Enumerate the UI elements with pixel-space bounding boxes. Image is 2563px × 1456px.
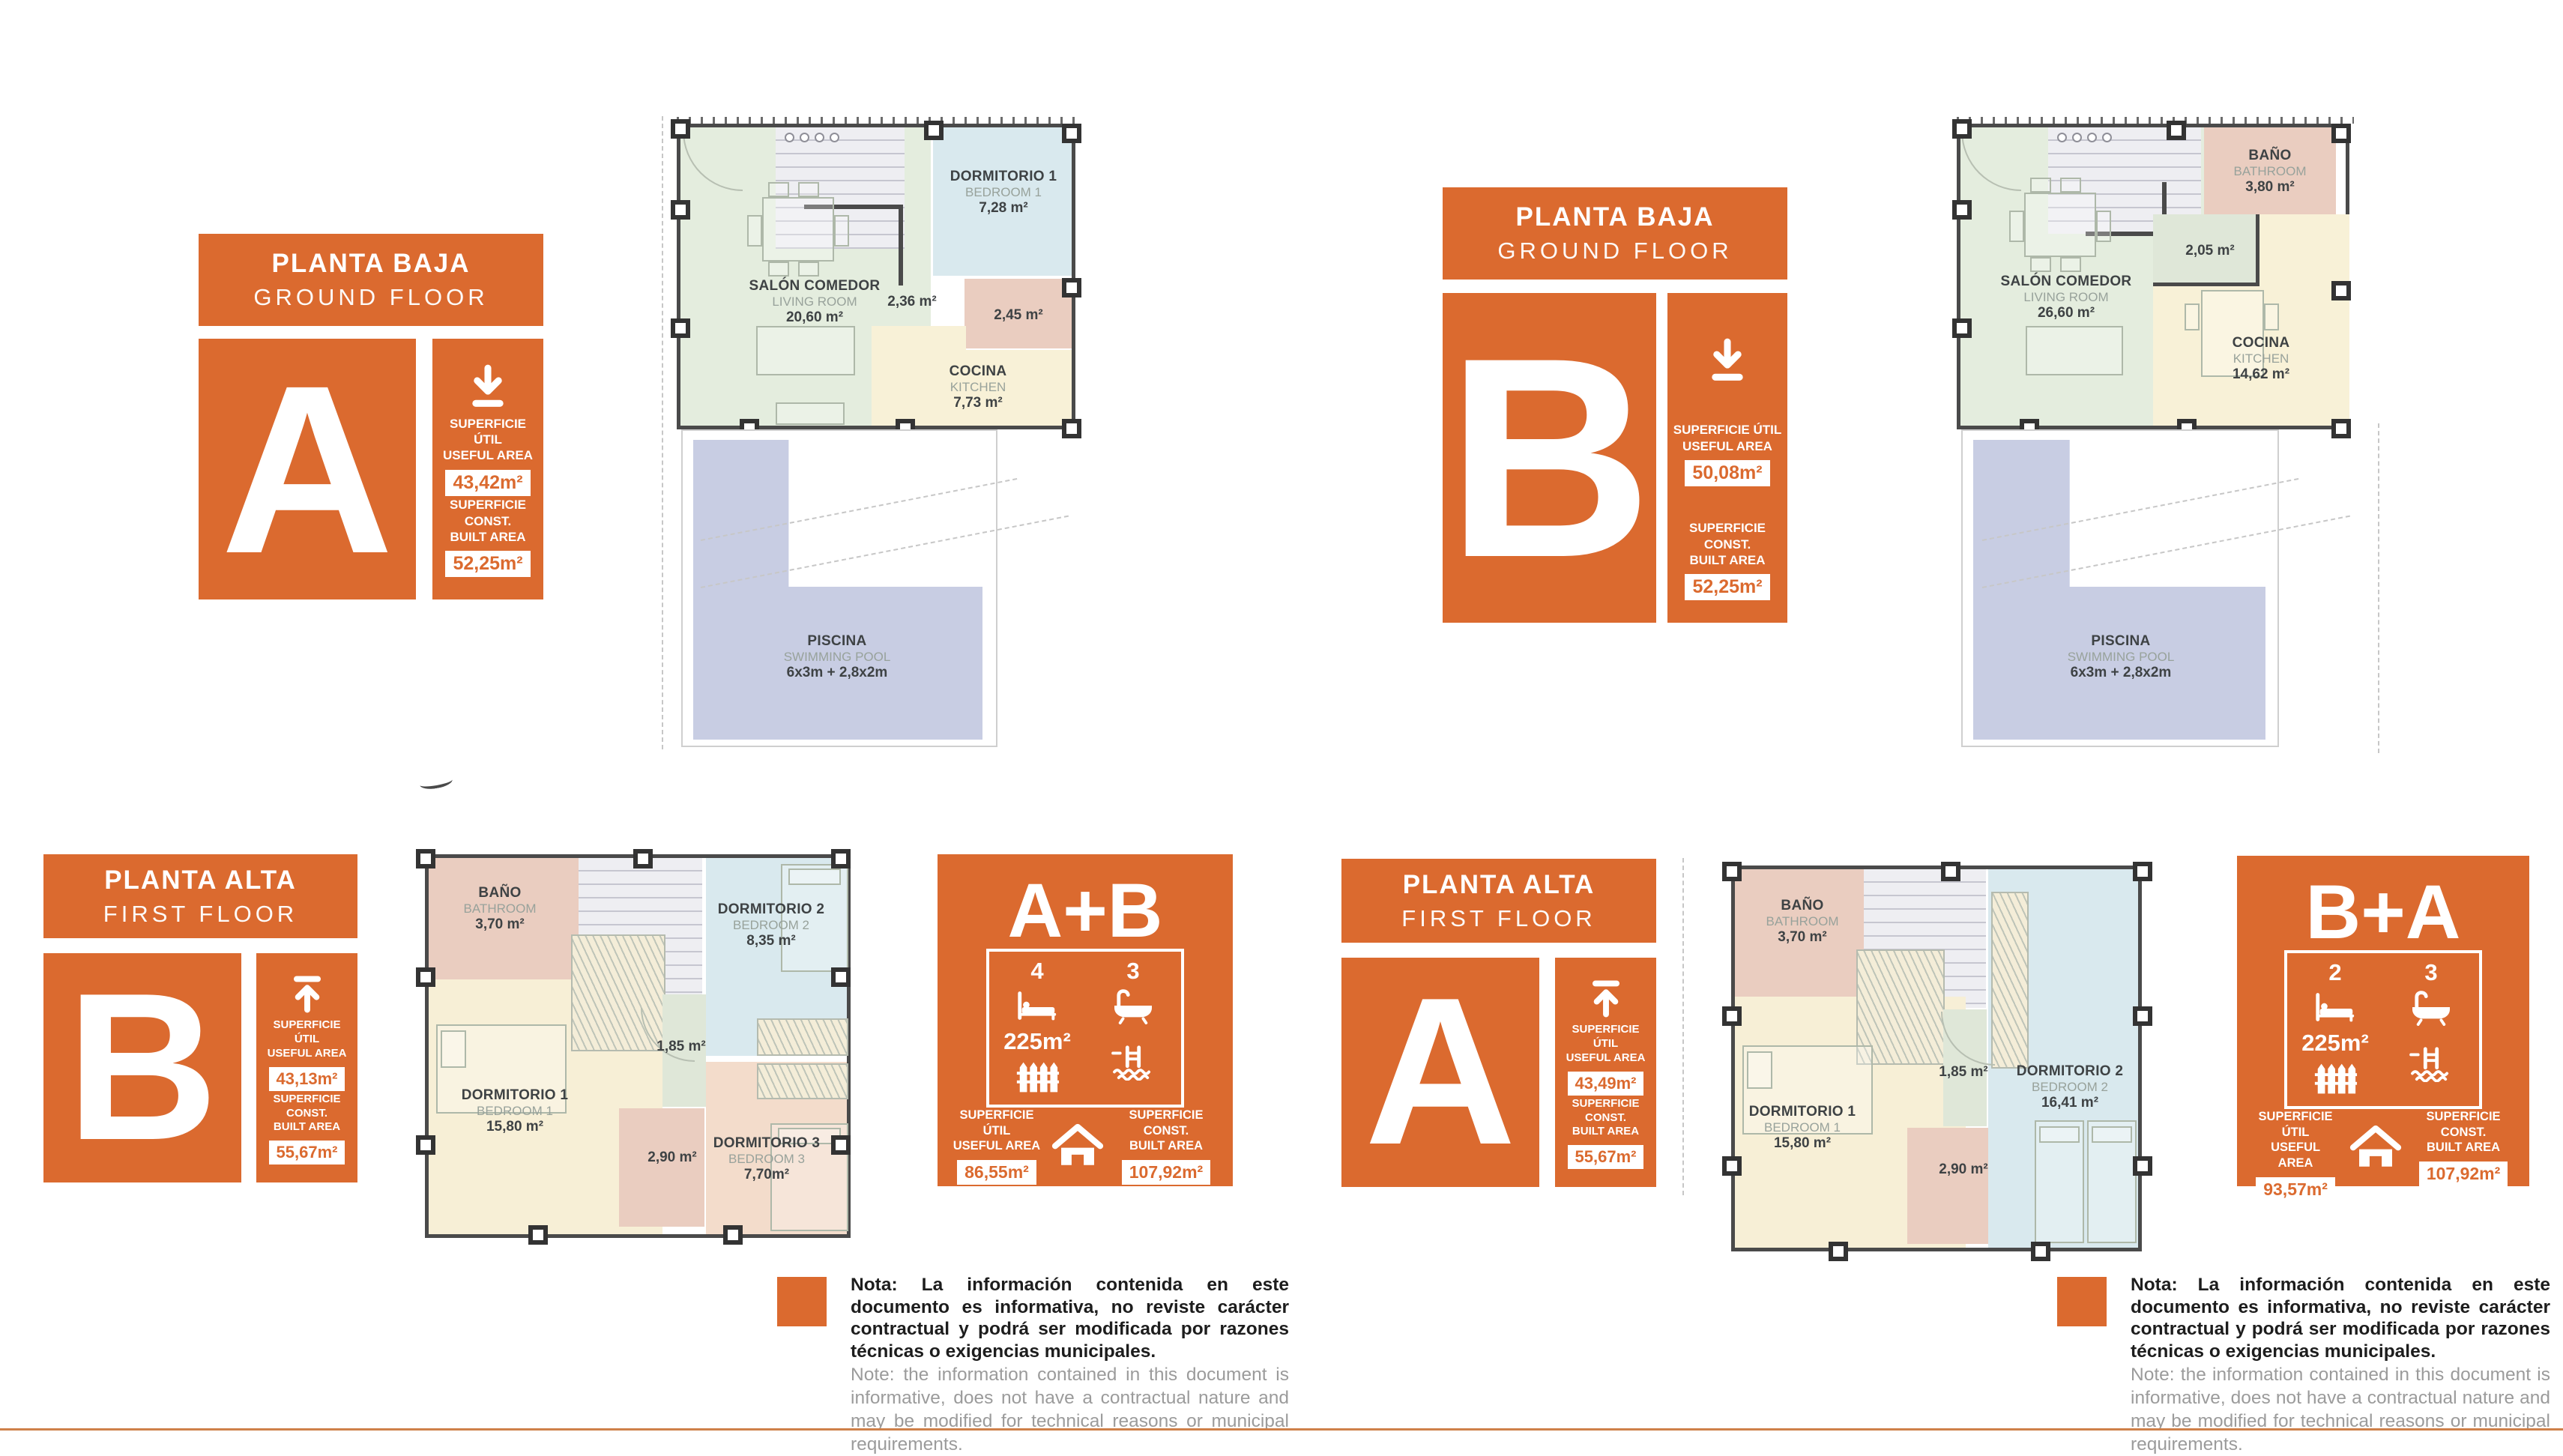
room-name-es: DORMITORIO 3 xyxy=(713,1135,821,1152)
panel-ground-floor-b: PLANTA BAJA GROUND FLOOR B SUPERFICIE ÚT… xyxy=(1443,187,1787,623)
wall-pillar xyxy=(2133,862,2152,881)
useful-label-en: USEFUL AREA xyxy=(1566,1051,1646,1066)
floor-title-en: GROUND FLOOR xyxy=(1497,238,1732,265)
wardrobe xyxy=(757,1063,848,1099)
built-label-en: BUILT AREA xyxy=(1129,1138,1203,1154)
panel-first-floor-b: PLANTA ALTA FIRST FLOOR B SUPERFICIE ÚTI… xyxy=(43,854,357,1182)
chair xyxy=(2060,178,2081,193)
room-area: 2,05 m² xyxy=(2185,243,2234,259)
room-label-bathroom: BAÑO BATHROOM 3,70 m² xyxy=(464,885,537,933)
room-name-en: BATHROOM xyxy=(464,901,537,916)
stair-step-numbers xyxy=(785,133,839,142)
combined-title: B+A xyxy=(2306,874,2461,950)
useful-value: 43,42m² xyxy=(445,470,530,496)
room-name-es: BAÑO xyxy=(1766,898,1839,914)
pool-dimensions: 6x3m + 2,8x2m xyxy=(784,665,891,681)
wall-pillar xyxy=(1941,862,1960,881)
note-en: Note: the information contained in this … xyxy=(2131,1363,2550,1456)
built-value: 107,92m² xyxy=(1122,1160,1210,1185)
wardrobe xyxy=(757,1018,848,1056)
built-area-group: SUPERFICIE CONST. BUILT AREA 52,25m² xyxy=(437,497,539,577)
built-label-en: BUILT AREA xyxy=(274,1120,340,1135)
chair xyxy=(2185,303,2200,330)
wall-pillar xyxy=(528,1225,548,1245)
built-label-es: SUPERFICIE CONST. xyxy=(437,497,539,529)
room-area: 14,62 m² xyxy=(2233,366,2290,383)
room-bathroom2 xyxy=(619,1108,704,1227)
built-label-en: BUILT AREA xyxy=(2427,1140,2500,1156)
useful-label-es: SUPERFICIE ÚTIL xyxy=(1558,1023,1653,1051)
built-label-en: BUILT AREA xyxy=(1689,552,1765,568)
wall-pillar xyxy=(1722,1156,1742,1176)
floor-plan-b-ground: SALÓN COMEDOR LIVING ROOM 26,60 m² BAÑO … xyxy=(1952,101,2387,761)
bathtub-icon xyxy=(2408,988,2454,1030)
pool-dimensions: 6x3m + 2,8x2m xyxy=(2068,665,2175,681)
stair-step-numbers xyxy=(2057,133,2112,142)
bathtub-icon xyxy=(1110,987,1156,1028)
built-area-group: SUPERFICIE CONST. BUILT AREA 55,67m² xyxy=(259,1093,354,1165)
fence-icon xyxy=(2312,1059,2358,1100)
room-label-hall: 1,85 m² xyxy=(656,1039,705,1055)
plot-boundary-dashed xyxy=(1682,858,1684,1195)
bathroom-count: 3 xyxy=(1126,958,1139,985)
floor-title-block: PLANTA ALTA FIRST FLOOR xyxy=(43,854,357,938)
room-name-es: DORMITORIO 1 xyxy=(462,1087,569,1104)
plot-feature: 225m² xyxy=(1003,1028,1071,1099)
room-area: 7,70m² xyxy=(713,1167,821,1183)
pool-feature xyxy=(2408,1045,2454,1086)
room-name-en: BATHROOM xyxy=(2234,164,2307,179)
combined-area-stats: SUPERFICIE ÚTIL USEFUL AREA 86,55m² SUPE… xyxy=(953,1108,1218,1185)
wall-pillar xyxy=(2031,1242,2050,1261)
room-name-en: KITCHEN xyxy=(2233,351,2290,366)
dining-table xyxy=(2024,193,2096,257)
pillow xyxy=(441,1030,466,1068)
room-label-bathroom2: 2,90 m² xyxy=(647,1150,696,1166)
room-name-es: BAÑO xyxy=(2234,148,2307,164)
room-label-bedroom1: DORMITORIO 1 BEDROOM 1 15,80 m² xyxy=(1749,1104,1856,1152)
unit-letter: A xyxy=(199,339,416,599)
fence-icon xyxy=(1014,1057,1060,1099)
room-area: 2,45 m² xyxy=(994,307,1042,324)
unit-letter: A xyxy=(1341,958,1539,1187)
useful-label-en: USEFUL AREA xyxy=(268,1047,347,1061)
built-label-en: BUILT AREA xyxy=(1572,1125,1639,1139)
room-label-hall: 1,85 m² xyxy=(1939,1064,1987,1081)
room-area: 2,90 m² xyxy=(647,1150,696,1166)
wall-pillar xyxy=(671,318,690,338)
bathroom-count: 3 xyxy=(2424,959,2437,986)
useful-value: 43,49m² xyxy=(1568,1072,1644,1096)
room-label-bathroom: BAÑO BATHROOM 3,70 m² xyxy=(1766,898,1839,946)
wall-pillar xyxy=(2133,1156,2152,1176)
built-area-group: SUPERFICIE CONST. BUILT AREA 107,92m² xyxy=(1114,1108,1218,1185)
room-name-es: SALÓN COMEDOR xyxy=(2001,274,2132,290)
note-bullet-square xyxy=(777,1277,827,1326)
room-label-living: SALÓN COMEDOR LIVING ROOM 20,60 m² xyxy=(749,278,881,326)
built-area-group: SUPERFICIE CONST. BUILT AREA 107,92m² xyxy=(2412,1109,2514,1186)
room-name-en: BEDROOM 1 xyxy=(462,1104,569,1119)
built-value: 52,25m² xyxy=(1685,574,1769,600)
room-name-en: BATHROOM xyxy=(1766,914,1839,929)
chair xyxy=(798,262,819,277)
room-label-bathroom: BAÑO BATHROOM 3,80 m² xyxy=(2234,148,2307,196)
bottom-accent-bar xyxy=(0,1428,2563,1431)
room-area: 16,41 m² xyxy=(2017,1095,2124,1111)
room-name-en: BEDROOM 3 xyxy=(713,1152,821,1167)
pool-label: PISCINA SWIMMING POOL 6x3m + 2,8x2m xyxy=(784,633,891,681)
room-name-es: DORMITORIO 2 xyxy=(718,901,825,918)
wall-pillar xyxy=(1952,119,1972,139)
panel-ground-floor-a: PLANTA BAJA GROUND FLOOR A SUPERFICIE ÚT… xyxy=(199,234,543,599)
combined-title: A+B xyxy=(1008,872,1163,949)
useful-value: 43,13m² xyxy=(269,1067,345,1091)
useful-area-group: SUPERFICIE ÚTIL USEFUL AREA 86,55m² xyxy=(953,1108,1041,1185)
unit-body: A SUPERFICIE ÚTIL USEFUL AREA 43,49m² SU… xyxy=(1341,958,1656,1187)
useful-value: 50,08m² xyxy=(1685,460,1769,486)
floor-title-block: PLANTA ALTA FIRST FLOOR xyxy=(1341,859,1656,943)
room-name-es: COCINA xyxy=(950,363,1007,380)
bed-icon xyxy=(2312,988,2358,1030)
room-area: 2,90 m² xyxy=(1939,1162,1987,1178)
room-area: 3,80 m² xyxy=(2234,179,2307,196)
room-area: 3,70 m² xyxy=(464,916,537,933)
download-icon xyxy=(465,364,511,414)
useful-area-group: SUPERFICIE ÚTIL USEFUL AREA 43,42m² xyxy=(437,416,539,496)
floor-title-es: PLANTA BAJA xyxy=(1515,202,1714,232)
unit-letter: B xyxy=(1443,293,1656,623)
plot-boundary-dashed xyxy=(662,116,663,749)
room-label-bedroom1: DORMITORIO 1 BEDROOM 1 7,28 m² xyxy=(950,169,1057,217)
wall-pillar xyxy=(1722,1006,1742,1026)
wall-pillar xyxy=(1062,124,1081,143)
facade-hatch xyxy=(677,117,1079,124)
room-label-bedroom3: DORMITORIO 3 BEDROOM 3 7,70m² xyxy=(713,1135,821,1183)
sofa xyxy=(2026,326,2123,375)
floor-title-en: FIRST FLOOR xyxy=(103,901,298,928)
wall-pillar xyxy=(633,849,653,869)
room-name-es: DORMITORIO 1 xyxy=(950,169,1057,185)
upload-icon xyxy=(287,973,327,1017)
room-area: 1,85 m² xyxy=(1939,1064,1987,1081)
built-value: 107,92m² xyxy=(2419,1162,2508,1186)
bedroom-count: 2 xyxy=(2328,959,2341,986)
pillow xyxy=(2092,1126,2132,1143)
unit-body: B SUPERFICIE ÚTIL USEFUL AREA 50,08m² SU… xyxy=(1443,293,1787,623)
room-label-kitchen: COCINA KITCHEN 14,62 m² xyxy=(2233,335,2290,383)
built-value: 52,25m² xyxy=(445,551,530,577)
area-stats: SUPERFICIE ÚTIL USEFUL AREA 43,49m² SUPE… xyxy=(1555,958,1656,1187)
chair xyxy=(2030,178,2051,193)
useful-label-es: SUPERFICIE ÚTIL xyxy=(1673,422,1782,438)
floor-plan-b-first: BAÑO BATHROOM 3,70 m² DORMITORIO 2 BEDRO… xyxy=(416,821,866,1251)
floor-plan-a-first: BAÑO BATHROOM 3,70 m² DORMITORIO 1 BEDRO… xyxy=(1716,821,2196,1259)
room-area: 15,80 m² xyxy=(1749,1135,1856,1152)
unit-body: A SUPERFICIE ÚTIL USEFUL AREA 43,42m² SU… xyxy=(199,339,543,599)
pillow xyxy=(1747,1051,1772,1089)
note-en: Note: the information contained in this … xyxy=(851,1363,1289,1456)
useful-label-en: USEFUL AREA xyxy=(443,447,533,463)
built-label-es: SUPERFICIE CONST. xyxy=(1114,1108,1218,1138)
wall-pillar xyxy=(1952,318,1972,338)
panel-combined-ba: B+A 2 3 225m² SUPERFICIE ÚTIL USEFUL ARE… xyxy=(2237,856,2529,1186)
tv-cabinet xyxy=(776,402,845,425)
room-name-en: BEDROOM 1 xyxy=(1749,1120,1856,1135)
wall-pillar xyxy=(1722,862,1742,881)
useful-label-en: USEFUL AREA xyxy=(1682,438,1772,454)
chair xyxy=(2030,257,2051,272)
chair xyxy=(2264,303,2279,330)
bed-icon xyxy=(1014,987,1060,1028)
wall-pillar xyxy=(416,967,435,987)
built-label-en: BUILT AREA xyxy=(450,529,525,545)
wall-pillar xyxy=(831,967,851,987)
area-stats: SUPERFICIE ÚTIL USEFUL AREA 43,13m² SUPE… xyxy=(256,953,357,1182)
chair xyxy=(834,215,849,247)
useful-area-group: SUPERFICIE ÚTIL USEFUL AREA 43,13m² xyxy=(259,1018,354,1090)
room-name-es: SALÓN COMEDOR xyxy=(749,278,881,294)
floor-title-es: PLANTA ALTA xyxy=(104,866,297,895)
useful-label-es: SUPERFICIE ÚTIL xyxy=(953,1108,1041,1138)
room-area: 8,35 m² xyxy=(718,933,825,949)
useful-label-en: USEFUL AREA xyxy=(953,1138,1040,1154)
features-box: 4 3 225m² xyxy=(986,949,1184,1108)
wall-pillar xyxy=(723,1225,743,1245)
room-label-bedroom2: DORMITORIO 2 BEDROOM 2 16,41 m² xyxy=(2017,1063,2124,1111)
facade-hatch xyxy=(1957,117,2354,124)
panel-combined-ab: A+B 4 3 225m² SUPERFICIE ÚTIL USEFUL ARE… xyxy=(938,854,1233,1186)
wall-pillar xyxy=(2331,124,2351,143)
panel-first-floor-a: PLANTA ALTA FIRST FLOOR A SUPERFICIE ÚTI… xyxy=(1341,859,1656,1187)
stray-mark xyxy=(419,773,453,791)
room-name-es: DORMITORIO 2 xyxy=(2017,1063,2124,1080)
useful-area-group: SUPERFICIE ÚTIL USEFUL AREA 43,49m² xyxy=(1558,1023,1653,1095)
pillow xyxy=(788,869,841,885)
floor-title-en: FIRST FLOOR xyxy=(1401,905,1596,932)
room-name-en: LIVING ROOM xyxy=(2001,290,2132,305)
wall-pillar xyxy=(671,119,690,139)
unit-letter: B xyxy=(43,953,241,1182)
wardrobe xyxy=(1991,892,2029,1069)
room-label-kitchen: COCINA KITCHEN 7,73 m² xyxy=(950,363,1007,411)
useful-value: 93,57m² xyxy=(2256,1177,2335,1202)
pool-name-es: PISCINA xyxy=(2068,633,2175,650)
room-label-bedroom2: DORMITORIO 2 BEDROOM 2 8,35 m² xyxy=(718,901,825,949)
room-name-es: DORMITORIO 1 xyxy=(1749,1104,1856,1120)
pool-feature xyxy=(1110,1043,1156,1084)
bathrooms-feature: 3 xyxy=(1110,958,1156,1028)
pool-icon xyxy=(1110,1043,1156,1084)
floor-title-block: PLANTA BAJA GROUND FLOOR xyxy=(199,234,543,326)
wall-pillar xyxy=(1062,278,1081,297)
built-label-es: SUPERFICIE CONST. xyxy=(259,1093,354,1121)
wall-pillar xyxy=(2133,1006,2152,1026)
room-area: 2,36 m² xyxy=(887,294,936,310)
plot-feature: 225m² xyxy=(2301,1030,2369,1100)
built-label-es: SUPERFICIE CONST. xyxy=(1558,1097,1653,1126)
features-box: 2 3 225m² xyxy=(2284,950,2482,1109)
room-area: 15,80 m² xyxy=(462,1119,569,1135)
floor-title-es: PLANTA BAJA xyxy=(271,249,470,279)
wall-pillar xyxy=(1952,200,1972,220)
useful-label-es: SUPERFICIE ÚTIL xyxy=(437,416,539,448)
room-name-en: KITCHEN xyxy=(950,380,1007,395)
room-name-es: COCINA xyxy=(2233,335,2290,351)
wall-pillar xyxy=(2331,419,2351,438)
note-es: Nota: La información contenida en este d… xyxy=(2131,1274,2550,1363)
chair xyxy=(747,215,762,247)
built-area-group: SUPERFICIE CONST. BUILT AREA 55,67m² xyxy=(1558,1097,1653,1169)
wall-pillar xyxy=(416,849,435,869)
plot-boundary-dashed xyxy=(2378,423,2379,753)
useful-label-es: SUPERFICIE ÚTIL xyxy=(259,1018,354,1047)
pillow xyxy=(2039,1126,2080,1143)
useful-area-group: SUPERFICIE ÚTIL USEFUL AREA 50,08m² xyxy=(1673,422,1782,486)
house-icon xyxy=(1050,1108,1105,1173)
built-area-group: SUPERFICIE CONST. BUILT AREA 52,25m² xyxy=(1672,520,1783,600)
pool-name-en: SWIMMING POOL xyxy=(784,650,891,665)
room-label-living: SALÓN COMEDOR LIVING ROOM 26,60 m² xyxy=(2001,274,2132,321)
built-value: 55,67m² xyxy=(1568,1145,1644,1169)
useful-label-en: USEFUL AREA xyxy=(2252,1140,2339,1170)
wall-pillar xyxy=(831,1135,851,1155)
plot-area: 225m² xyxy=(1003,1028,1071,1055)
pool-name-es: PISCINA xyxy=(784,633,891,650)
room-label-bedroom1: DORMITORIO 1 BEDROOM 1 15,80 m² xyxy=(462,1087,569,1135)
chair xyxy=(2060,257,2081,272)
room-name-en: BEDROOM 2 xyxy=(718,918,825,933)
pool-name-en: SWIMMING POOL xyxy=(2068,650,2175,665)
room-area: 20,60 m² xyxy=(749,309,881,326)
built-label-es: SUPERFICIE CONST. xyxy=(2412,1109,2514,1140)
wall-pillar xyxy=(1829,1242,1848,1261)
room-label-hall: 2,05 m² xyxy=(2185,243,2234,259)
room-label-bath: 2,45 m² xyxy=(994,307,1042,324)
floor-title-es: PLANTA ALTA xyxy=(1403,870,1596,900)
floor-plan-a-ground: SALÓN COMEDOR LIVING ROOM 20,60 m² DORMI… xyxy=(671,101,1087,761)
combined-area-stats: SUPERFICIE ÚTIL USEFUL AREA 93,57m² SUPE… xyxy=(2252,1109,2514,1202)
area-stats: SUPERFICIE ÚTIL USEFUL AREA 43,42m² SUPE… xyxy=(432,339,543,599)
chair xyxy=(768,182,789,197)
bathrooms-feature: 3 xyxy=(2408,959,2454,1030)
room-area: 3,70 m² xyxy=(1766,929,1839,946)
house-icon xyxy=(2348,1109,2403,1174)
useful-area-group: SUPERFICIE ÚTIL USEFUL AREA 93,57m² xyxy=(2252,1109,2339,1202)
room-name-en: BEDROOM 1 xyxy=(950,185,1057,200)
room-bathroom2 xyxy=(1907,1128,1990,1244)
room-area: 7,73 m² xyxy=(950,395,1007,411)
bedrooms-feature: 4 xyxy=(1014,958,1060,1028)
room-name-en: BEDROOM 2 xyxy=(2017,1080,2124,1095)
floor-title-block: PLANTA BAJA GROUND FLOOR xyxy=(1443,187,1787,280)
wall-pillar xyxy=(416,1135,435,1155)
room-label-hall: 2,36 m² xyxy=(887,294,936,310)
upload-icon xyxy=(1586,977,1626,1021)
area-stats: SUPERFICIE ÚTIL USEFUL AREA 50,08m² SUPE… xyxy=(1667,293,1787,623)
download-icon xyxy=(1704,338,1751,388)
wall-pillar xyxy=(924,121,944,140)
wall-pillar xyxy=(831,849,851,869)
pool-icon xyxy=(2408,1045,2454,1086)
bedrooms-feature: 2 xyxy=(2312,959,2358,1030)
chair xyxy=(798,182,819,197)
pool-label: PISCINA SWIMMING POOL 6x3m + 2,8x2m xyxy=(2068,633,2175,681)
wall-pillar xyxy=(2167,121,2186,140)
wall-pillar xyxy=(671,200,690,220)
room-name-es: BAÑO xyxy=(464,885,537,901)
useful-label-es: SUPERFICIE ÚTIL xyxy=(2252,1109,2339,1140)
room-label-bathroom2: 2,90 m² xyxy=(1939,1162,1987,1178)
plot-area: 225m² xyxy=(2301,1030,2369,1057)
built-value: 55,67m² xyxy=(269,1141,345,1165)
wall-pillar xyxy=(2331,281,2351,300)
bedroom-count: 4 xyxy=(1030,958,1043,985)
sofa xyxy=(756,326,855,375)
room-area: 7,28 m² xyxy=(950,200,1057,217)
chair xyxy=(2096,211,2111,242)
note-bullet-square xyxy=(2057,1277,2107,1326)
chair xyxy=(2009,211,2024,242)
room-area: 26,60 m² xyxy=(2001,305,2132,321)
wall-pillar xyxy=(1062,419,1081,438)
note-es: Nota: La información contenida en este d… xyxy=(851,1274,1289,1363)
useful-value: 86,55m² xyxy=(957,1160,1036,1185)
room-area: 1,85 m² xyxy=(656,1039,705,1055)
dining-table xyxy=(762,197,834,262)
room-name-en: LIVING ROOM xyxy=(749,294,881,309)
floor-title-en: GROUND FLOOR xyxy=(253,284,488,311)
chair xyxy=(768,262,789,277)
unit-body: B SUPERFICIE ÚTIL USEFUL AREA 43,13m² SU… xyxy=(43,953,357,1182)
built-label-es: SUPERFICIE CONST. xyxy=(1672,520,1783,552)
